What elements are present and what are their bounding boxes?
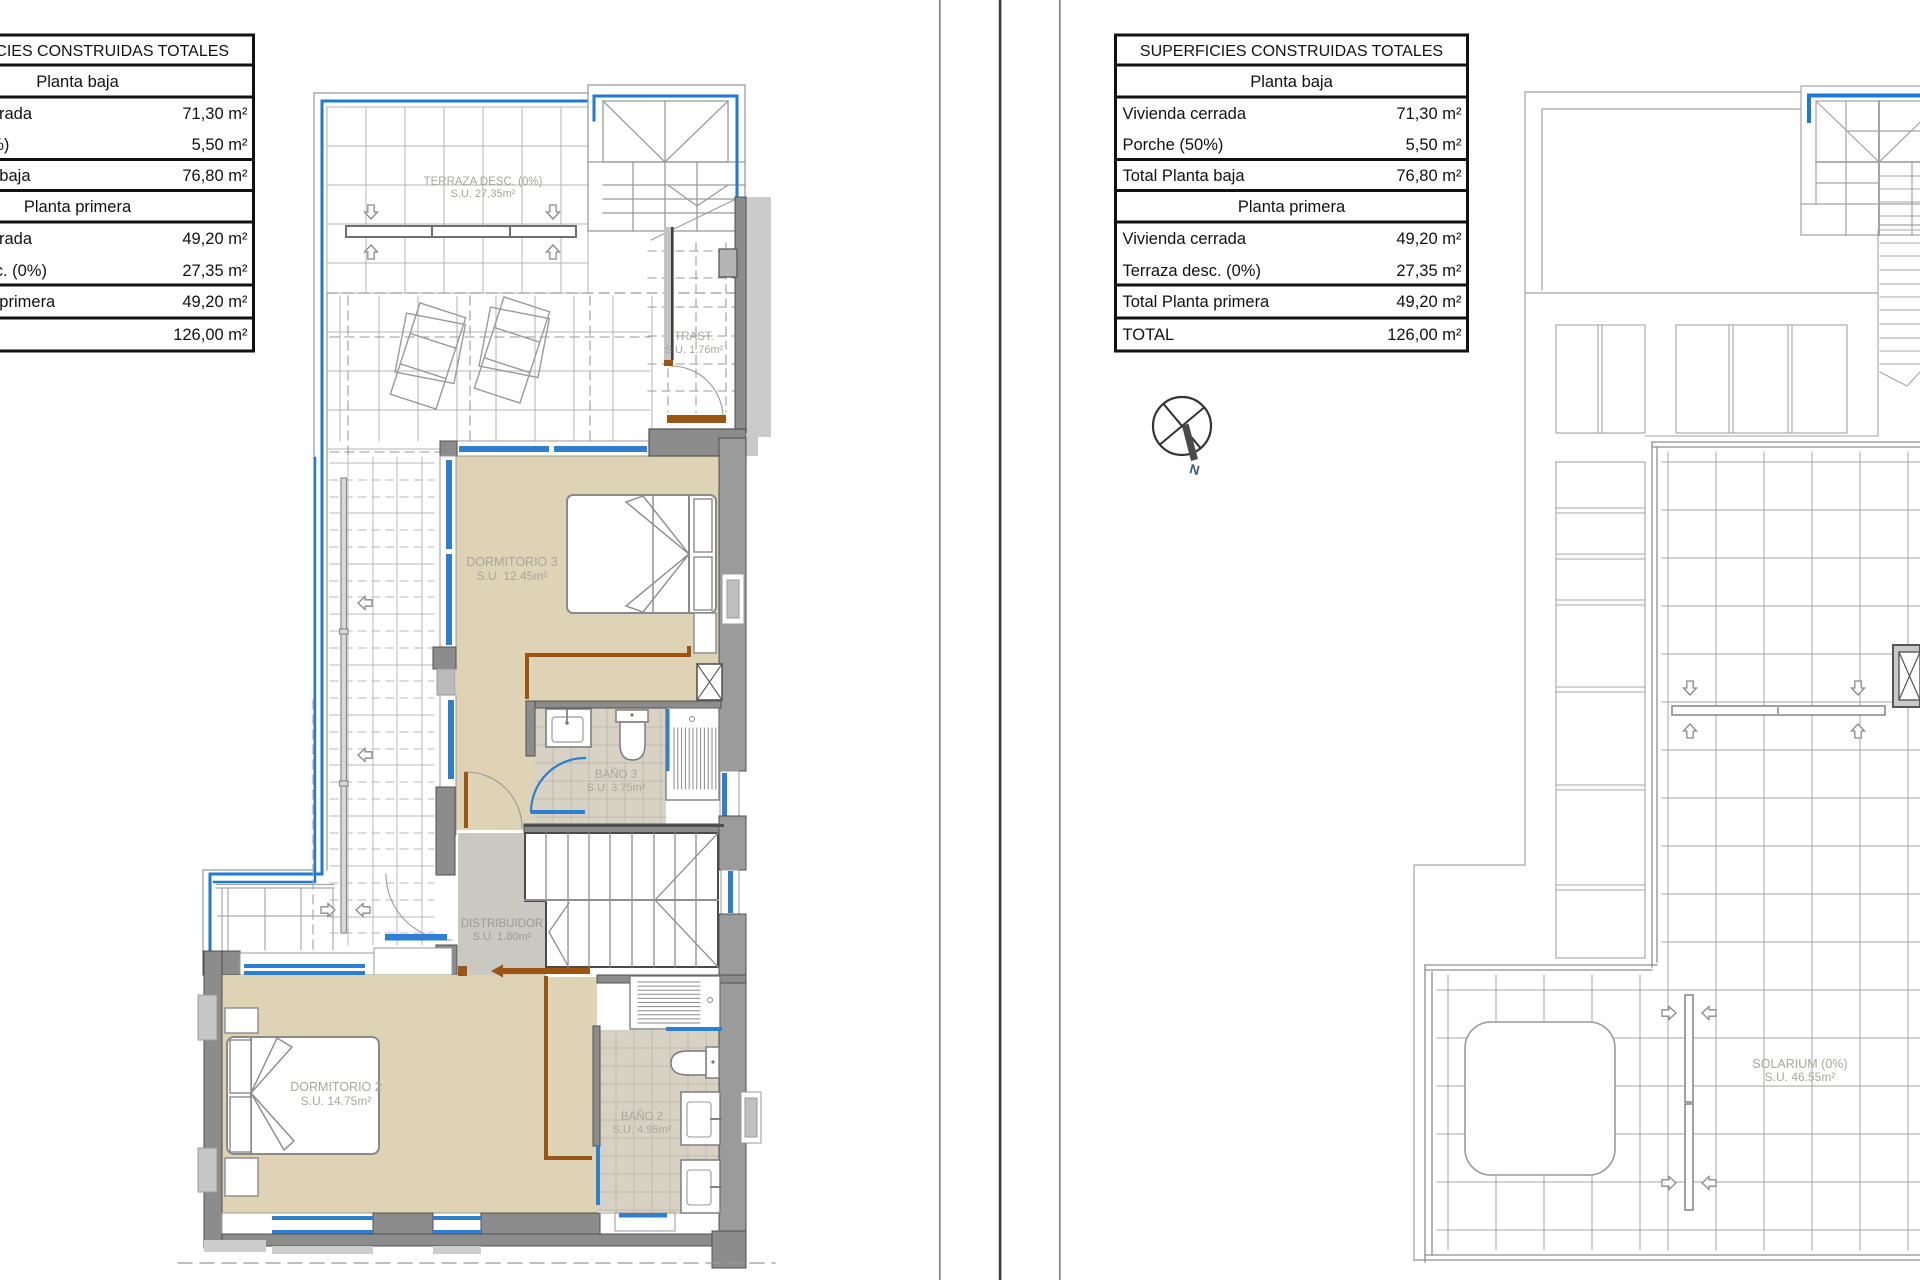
svg-text:S.U. 14.75m²: S.U. 14.75m² bbox=[301, 1094, 372, 1108]
svg-text:49,20 m²: 49,20 m² bbox=[182, 293, 248, 311]
svg-text:Vivienda cerrada: Vivienda cerrada bbox=[0, 230, 33, 248]
svg-text:Terraza desc. (0%): Terraza desc. (0%) bbox=[1123, 262, 1261, 280]
svg-text:Vivienda cerrada: Vivienda cerrada bbox=[1123, 105, 1247, 123]
svg-text:Vivienda cerrada: Vivienda cerrada bbox=[0, 105, 33, 123]
svg-text:S.U. 4.95m²: S.U. 4.95m² bbox=[613, 1124, 672, 1136]
svg-text:Terraza desc. (0%): Terraza desc. (0%) bbox=[0, 262, 47, 280]
svg-text:27,35 m²: 27,35 m² bbox=[1396, 262, 1462, 280]
svg-text:5,50 m²: 5,50 m² bbox=[1406, 136, 1462, 154]
svg-text:TOTAL: TOTAL bbox=[1123, 326, 1175, 344]
svg-text:27,35 m²: 27,35 m² bbox=[182, 262, 248, 280]
svg-text:49,20 m²: 49,20 m² bbox=[1396, 293, 1462, 311]
svg-text:TRAST.: TRAST. bbox=[674, 331, 714, 343]
svg-text:Vivienda cerrada: Vivienda cerrada bbox=[1123, 230, 1247, 248]
svg-text:Planta primera: Planta primera bbox=[24, 198, 132, 216]
svg-text:BAÑO 3: BAÑO 3 bbox=[595, 768, 637, 781]
svg-text:71,30 m²: 71,30 m² bbox=[182, 105, 248, 123]
svg-text:BAÑO 2: BAÑO 2 bbox=[621, 1110, 663, 1123]
svg-text:126,00 m²: 126,00 m² bbox=[173, 326, 248, 344]
svg-text:SUPERFICIES CONSTRUIDAS TOTALE: SUPERFICIES CONSTRUIDAS TOTALES bbox=[0, 43, 229, 60]
svg-text:49,20 m²: 49,20 m² bbox=[182, 230, 248, 248]
svg-text:DORMITORIO 2: DORMITORIO 2 bbox=[290, 1080, 381, 1094]
svg-text:Porche (50%): Porche (50%) bbox=[0, 136, 9, 154]
svg-text:Planta primera: Planta primera bbox=[1238, 198, 1346, 216]
svg-text:126,00 m²: 126,00 m² bbox=[1387, 326, 1462, 344]
svg-text:S.U. 1.76m²: S.U. 1.76m² bbox=[665, 344, 724, 356]
svg-text:Porche (50%): Porche (50%) bbox=[1123, 136, 1224, 154]
svg-text:S.U. 3.75m²: S.U. 3.75m² bbox=[587, 782, 646, 794]
svg-text:TERRAZA DESC. (0%): TERRAZA DESC. (0%) bbox=[424, 176, 543, 188]
svg-text:76,80 m²: 76,80 m² bbox=[1396, 167, 1462, 185]
svg-text:SUPERFICIES CONSTRUIDAS TOTALE: SUPERFICIES CONSTRUIDAS TOTALES bbox=[1140, 43, 1443, 60]
svg-text:49,20 m²: 49,20 m² bbox=[1396, 230, 1462, 248]
svg-text:S.U. 1.80m²: S.U. 1.80m² bbox=[473, 931, 532, 943]
svg-text:76,80 m²: 76,80 m² bbox=[182, 167, 248, 185]
svg-text:Total Planta baja: Total Planta baja bbox=[0, 167, 31, 185]
svg-text:Planta baja: Planta baja bbox=[36, 73, 119, 91]
svg-text:5,50 m²: 5,50 m² bbox=[192, 136, 248, 154]
svg-text:DORMITORIO 3: DORMITORIO 3 bbox=[466, 555, 557, 569]
svg-text:S.U. 46.55m²: S.U. 46.55m² bbox=[1765, 1070, 1836, 1084]
svg-text:Total Planta primera: Total Planta primera bbox=[1123, 293, 1271, 311]
svg-text:Planta baja: Planta baja bbox=[1250, 73, 1333, 91]
svg-text:SOLARIUM (0%): SOLARIUM (0%) bbox=[1752, 1057, 1847, 1071]
svg-text:DISTRIBUIDOR: DISTRIBUIDOR bbox=[461, 918, 543, 930]
svg-text:Total Planta primera: Total Planta primera bbox=[0, 293, 56, 311]
svg-text:Total Planta baja: Total Planta baja bbox=[1123, 167, 1246, 185]
svg-text:S.U. 12.45m²: S.U. 12.45m² bbox=[477, 569, 548, 583]
svg-text:S.U. 27,35m²: S.U. 27,35m² bbox=[451, 188, 516, 200]
svg-text:71,30 m²: 71,30 m² bbox=[1396, 105, 1462, 123]
